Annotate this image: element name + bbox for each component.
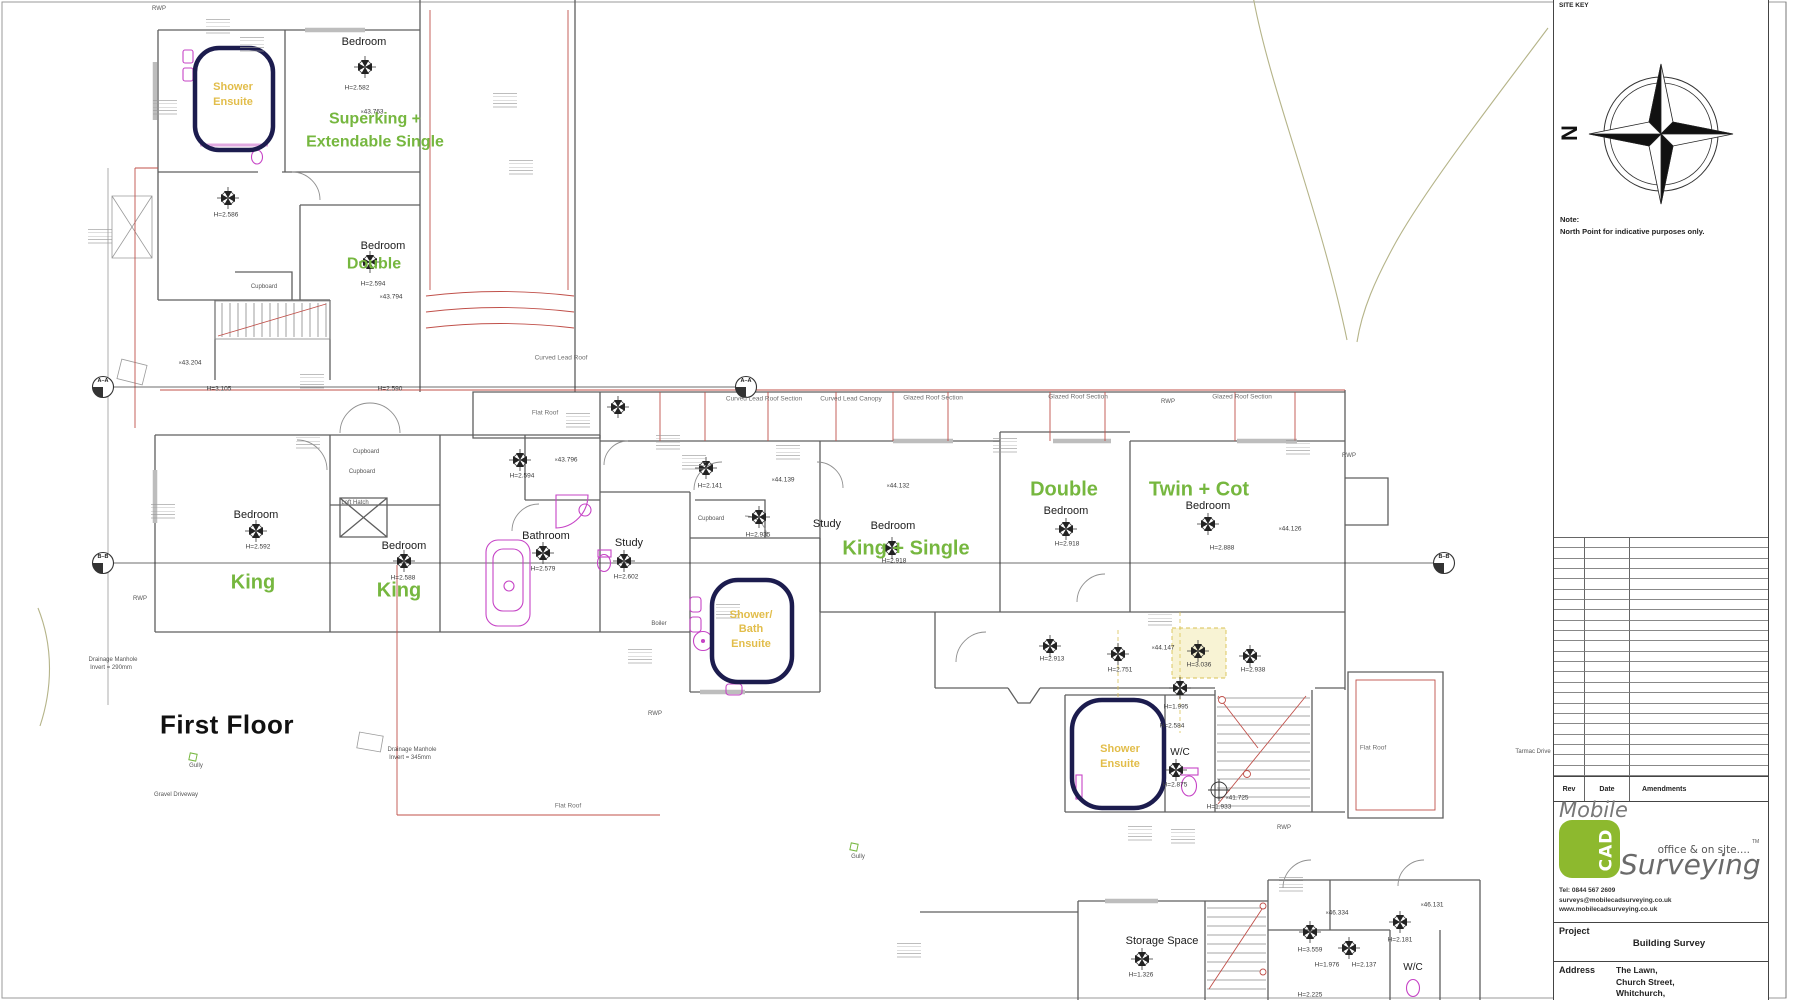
height-annotation: H=1.976 xyxy=(1315,963,1340,970)
rev-table-empty-row xyxy=(1554,672,1768,682)
room-type-label: King + Single xyxy=(842,539,969,560)
amendments-column-header: Amendments xyxy=(1630,777,1768,801)
height-annotation: H=1.326 xyxy=(1129,973,1154,980)
note-title: Note: xyxy=(1560,215,1579,224)
ensuite-label: Bath xyxy=(739,624,763,636)
title-block-panel: SITE KEY N Note: North Point for indicat… xyxy=(1553,0,1769,1000)
height-annotation: H=1.933 xyxy=(1207,805,1232,812)
misc-annotation: Boiler xyxy=(651,621,666,627)
misc-annotation: Drainage Manhole xyxy=(88,657,137,663)
rev-table-empty-row xyxy=(1554,600,1768,610)
logo-mobile-text: Mobile xyxy=(1559,798,1628,822)
spot-level-annotation: 44.132 xyxy=(886,484,909,491)
spot-level-annotation: 43.794 xyxy=(379,295,402,302)
divider xyxy=(1554,961,1768,962)
revision-table-rows xyxy=(1554,538,1768,776)
note-body: North Point for indicative purposes only… xyxy=(1560,227,1762,236)
room-name-label: Bedroom xyxy=(382,541,427,553)
height-annotation: H=3.105 xyxy=(207,387,232,394)
misc-annotation: Tarmac Drive xyxy=(1515,749,1550,755)
logo-surveying-text: Surveying xyxy=(1620,848,1761,881)
revision-table: Rev Date Amendments xyxy=(1554,537,1768,802)
section-marker-label: A–A xyxy=(97,379,108,385)
spot-level-annotation: 43.796 xyxy=(554,458,577,465)
misc-annotation: RWP xyxy=(1161,399,1175,405)
roof-label: Glazed Roof Section xyxy=(1212,395,1272,402)
roof-label: Glazed Roof Section xyxy=(1048,395,1108,402)
room-name-label: Study xyxy=(813,519,841,531)
rev-table-empty-row xyxy=(1554,569,1768,579)
room-type-label: Twin + Cot xyxy=(1149,480,1249,501)
room-type-label: King xyxy=(377,581,421,602)
height-annotation: H=2.584 xyxy=(1160,724,1185,731)
section-marker-label: A–A xyxy=(740,379,751,385)
rev-table-empty-row xyxy=(1554,745,1768,755)
rev-table-empty-row xyxy=(1554,714,1768,724)
height-annotation: H=2.590 xyxy=(378,387,403,394)
height-annotation: H=2.582 xyxy=(345,86,370,93)
misc-annotation: Gully xyxy=(189,763,203,769)
height-annotation: H=2.225 xyxy=(1298,993,1323,1000)
rev-table-empty-row xyxy=(1554,559,1768,569)
misc-annotation: Gully xyxy=(851,854,865,860)
project-label: Project xyxy=(1559,926,1590,936)
room-type-label: Double xyxy=(1030,480,1098,501)
project-value: Building Survey xyxy=(1614,938,1724,949)
contact-line: www.mobilecadsurveying.co.uk xyxy=(1559,905,1672,915)
misc-annotation: RWP xyxy=(133,596,147,602)
logo-trademark: TM xyxy=(1752,839,1759,845)
misc-annotation: Gravel Driveway xyxy=(154,792,198,798)
room-name-label: Study xyxy=(615,538,643,550)
ensuite-label: Ensuite xyxy=(1100,759,1140,771)
ensuite-label: Shower xyxy=(213,82,253,94)
ensuite-label: Ensuite xyxy=(213,97,253,109)
height-annotation: H=2.751 xyxy=(1108,668,1133,675)
rev-table-empty-row xyxy=(1554,641,1768,651)
height-annotation: H=2.918 xyxy=(882,559,907,566)
address-line: Whitchurch, xyxy=(1616,988,1675,1000)
roof-label: Curved Lead Roof xyxy=(535,356,588,363)
misc-annotation: RWP xyxy=(648,711,662,717)
rev-table-empty-row xyxy=(1554,621,1768,631)
height-annotation: H=2.586 xyxy=(214,213,239,220)
spot-level-annotation: 41.725 xyxy=(1225,796,1248,803)
room-type-label: Double xyxy=(347,257,401,274)
height-annotation: H=1.995 xyxy=(1164,705,1189,712)
roof-label: Glazed Roof Section xyxy=(903,396,963,403)
height-annotation: H=2.181 xyxy=(1388,938,1413,945)
height-annotation: H=2.888 xyxy=(1210,546,1235,553)
misc-annotation: Cupboard xyxy=(353,449,379,455)
ensuite-label: Ensuite xyxy=(731,639,771,651)
rev-table-empty-row xyxy=(1554,631,1768,641)
rev-table-empty-row xyxy=(1554,693,1768,703)
room-name-label: Bedroom xyxy=(361,241,406,253)
misc-annotation: RWP xyxy=(1342,453,1356,459)
ensuite-label: Shower xyxy=(1100,744,1140,756)
rev-table-empty-row xyxy=(1554,755,1768,765)
north-compass-icon xyxy=(1586,59,1736,209)
height-annotation: H=2.579 xyxy=(531,567,556,574)
room-name-label: W/C xyxy=(1403,963,1422,974)
rev-table-empty-row xyxy=(1554,683,1768,693)
misc-annotation: Drainage Manhole xyxy=(387,747,436,753)
misc-annotation: Cupboard xyxy=(698,516,724,522)
rev-table-empty-row xyxy=(1554,662,1768,672)
height-annotation: H=2.594 xyxy=(510,474,535,481)
rev-table-empty-row xyxy=(1554,610,1768,620)
rev-table-empty-row xyxy=(1554,590,1768,600)
spot-level-annotation: 44.126 xyxy=(1278,527,1301,534)
rev-table-empty-row xyxy=(1554,652,1768,662)
height-annotation: H=2.913 xyxy=(1040,657,1065,664)
address-line: The Lawn, xyxy=(1616,965,1675,977)
rev-table-empty-row xyxy=(1554,538,1768,548)
height-annotation: H=2.938 xyxy=(1241,668,1266,675)
height-annotation: H=2.602 xyxy=(614,575,639,582)
room-type-label: King xyxy=(231,573,275,594)
ensuite-label: Shower/ xyxy=(730,610,773,622)
height-annotation: H=2.594 xyxy=(361,282,386,289)
address-line: Church Street, xyxy=(1616,977,1675,989)
room-name-label: Bedroom xyxy=(234,510,279,522)
rev-table-empty-row xyxy=(1554,735,1768,745)
spot-level-annotation: 43.763 xyxy=(360,110,383,117)
room-type-label: Extendable Single xyxy=(306,135,444,152)
floor-plan-sheet: BedroomBedroomBedroomBedroomBathroomStud… xyxy=(0,0,1800,1000)
misc-annotation: Invert = 345mm xyxy=(389,755,431,761)
height-annotation: H=2.141 xyxy=(698,484,723,491)
roof-label: Curved Lead Canopy xyxy=(820,397,881,404)
misc-annotation: RWP xyxy=(152,6,166,12)
height-annotation: H=3.036 xyxy=(1187,663,1212,670)
address-lines: The Lawn,Church Street,Whitchurch, xyxy=(1616,965,1675,1000)
room-name-label: Bedroom xyxy=(1186,501,1231,513)
room-name-label: Bathroom xyxy=(522,531,570,543)
misc-annotation: Invert = 290mm xyxy=(90,665,132,671)
misc-annotation: RWP xyxy=(1277,825,1291,831)
room-name-label: W/C xyxy=(1170,748,1189,759)
logo-cad-text: CAD xyxy=(1594,822,1618,878)
spot-level-annotation: 46.334 xyxy=(1325,911,1348,918)
section-marker-label: B–B xyxy=(97,555,108,561)
rev-table-empty-row xyxy=(1554,724,1768,734)
divider xyxy=(1554,922,1768,923)
roof-label: Curved Lead Roof Section xyxy=(726,397,802,404)
spot-level-annotation: 44.147 xyxy=(1151,646,1174,653)
spot-level-annotation: 46.131 xyxy=(1420,903,1443,910)
room-name-label: Bedroom xyxy=(871,521,916,533)
contact-lines: Tel: 0844 567 2609surveys@mobilecadsurve… xyxy=(1559,886,1672,915)
roof-label: Flat Roof xyxy=(532,411,558,418)
height-annotation: H=3.559 xyxy=(1298,948,1323,955)
floor-title: First Floor xyxy=(160,711,294,738)
height-annotation: H=2.935 xyxy=(746,533,771,540)
height-annotation: H=2.875 xyxy=(1163,783,1188,790)
contact-line: Tel: 0844 567 2609 xyxy=(1559,886,1672,896)
contact-line: surveys@mobilecadsurveying.co.uk xyxy=(1559,896,1672,906)
room-name-label: Bedroom xyxy=(342,37,387,49)
rev-table-empty-row xyxy=(1554,704,1768,714)
spot-level-annotation: 43.204 xyxy=(178,361,201,368)
spot-level-annotation: 44.139 xyxy=(771,478,794,485)
height-annotation: H=2.592 xyxy=(246,545,271,552)
rev-table-empty-row xyxy=(1554,766,1768,776)
roof-label: Flat Roof xyxy=(1360,746,1386,753)
section-marker-label: B–B xyxy=(1438,555,1449,561)
room-name-label: Bedroom xyxy=(1044,506,1089,518)
height-annotation: H=2.588 xyxy=(391,576,416,583)
rev-table-empty-row xyxy=(1554,579,1768,589)
address-label: Address xyxy=(1559,965,1595,975)
room-name-label: Storage Space xyxy=(1126,936,1199,948)
misc-annotation: Cupboard xyxy=(349,469,375,475)
rev-table-empty-row xyxy=(1554,548,1768,558)
north-letter: N xyxy=(1557,125,1583,141)
misc-annotation: Cupboard xyxy=(251,284,277,290)
height-annotation: H=2.137 xyxy=(1352,963,1377,970)
roof-label: Flat Roof xyxy=(555,804,581,811)
misc-annotation: Loft Hatch xyxy=(341,500,368,506)
site-key-label: SITE KEY xyxy=(1559,2,1589,9)
height-annotation: H=2.918 xyxy=(1055,542,1080,549)
plan-label-layer: BedroomBedroomBedroomBedroomBathroomStud… xyxy=(0,0,1800,1000)
